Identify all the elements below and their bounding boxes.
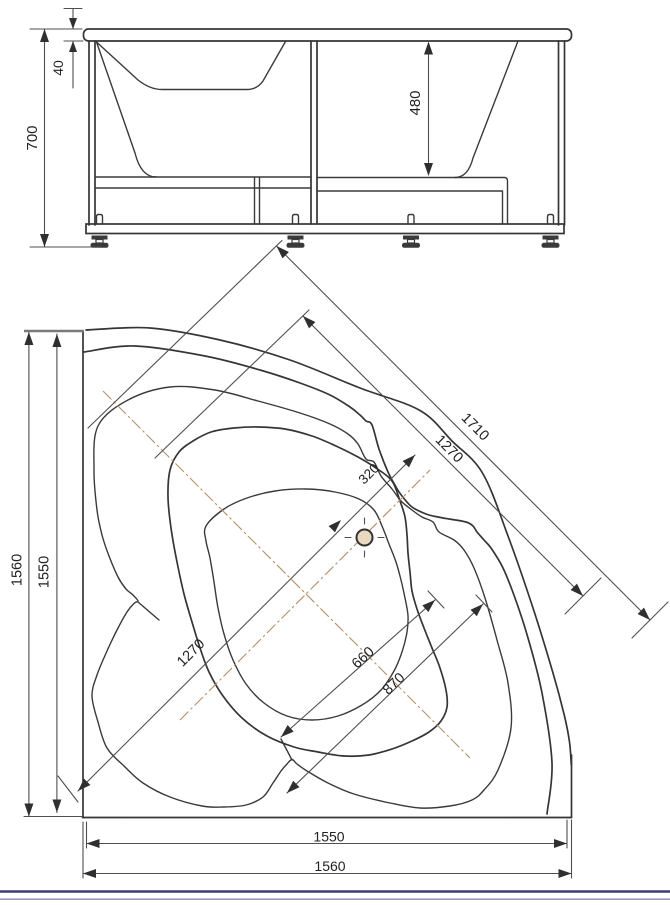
svg-text:1550: 1550 bbox=[313, 829, 344, 845]
svg-text:1560: 1560 bbox=[314, 858, 345, 874]
svg-text:40: 40 bbox=[50, 60, 66, 76]
svg-text:700: 700 bbox=[24, 125, 41, 150]
svg-text:1560: 1560 bbox=[10, 554, 26, 586]
svg-text:480: 480 bbox=[407, 90, 424, 115]
svg-text:1550: 1550 bbox=[37, 556, 53, 588]
